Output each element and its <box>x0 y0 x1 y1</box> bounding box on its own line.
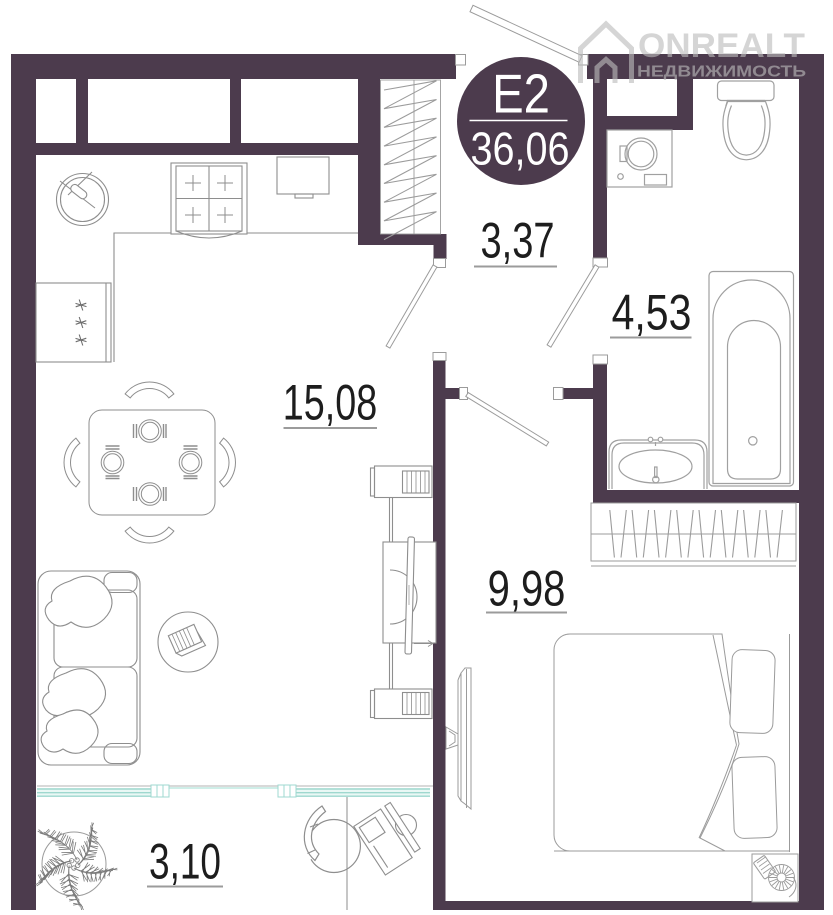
svg-text:E2: E2 <box>492 63 550 124</box>
svg-text:15,08: 15,08 <box>283 375 377 430</box>
svg-text:36,06: 36,06 <box>471 124 570 175</box>
svg-text:3,37: 3,37 <box>481 214 555 269</box>
svg-text:9,98: 9,98 <box>488 560 566 616</box>
svg-text:3,10: 3,10 <box>149 834 221 890</box>
svg-text:4,53: 4,53 <box>612 285 692 341</box>
svg-text:НЕДВИЖИМОСТЬ: НЕДВИЖИМОСТЬ <box>637 64 806 81</box>
svg-text:ONREALT: ONREALT <box>638 27 805 65</box>
